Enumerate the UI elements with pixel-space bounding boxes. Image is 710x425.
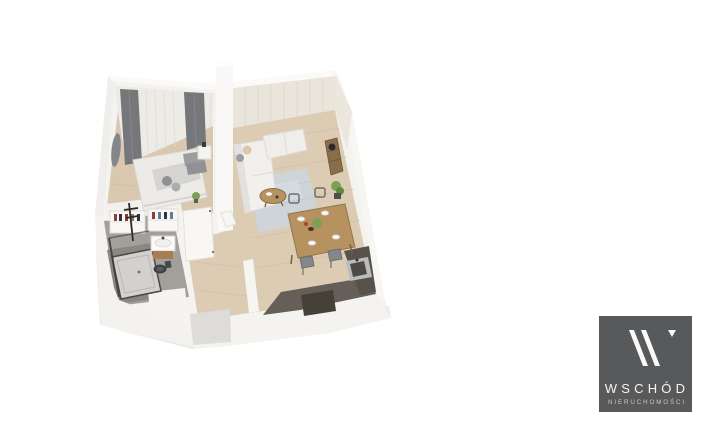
sofa-pillow bbox=[243, 146, 252, 155]
black-vase bbox=[329, 144, 336, 151]
washbasin bbox=[151, 236, 175, 259]
throw-pillow bbox=[162, 176, 172, 186]
plate bbox=[309, 241, 316, 245]
plate bbox=[322, 211, 329, 215]
basin bbox=[155, 239, 171, 247]
door-hinge bbox=[212, 251, 214, 253]
bowl bbox=[308, 227, 314, 231]
plate bbox=[298, 217, 305, 221]
divider-wall-cap bbox=[216, 61, 233, 67]
page: WSCHÓD NIERUCHOMOŚCI bbox=[0, 0, 710, 425]
kitchen-sink bbox=[346, 257, 372, 281]
sofa-pillow bbox=[236, 154, 244, 162]
vanity-shelf bbox=[153, 251, 173, 259]
logo-subtitle: NIERUCHOMOŚCI bbox=[608, 398, 686, 406]
entry-door-recess bbox=[190, 309, 231, 345]
door-hinge bbox=[209, 210, 211, 212]
faucet bbox=[162, 237, 165, 240]
plate bbox=[333, 235, 340, 239]
throw-pillow bbox=[172, 183, 181, 192]
centerpiece-plant bbox=[312, 218, 322, 228]
divider-wall bbox=[216, 61, 233, 232]
wschod-logo: WSCHÓD NIERUCHOMOŚCI bbox=[599, 316, 692, 412]
logo-title: WSCHÓD bbox=[605, 381, 689, 396]
red-item bbox=[304, 222, 308, 226]
bathroom-door bbox=[183, 207, 214, 261]
faucet bbox=[356, 259, 359, 262]
